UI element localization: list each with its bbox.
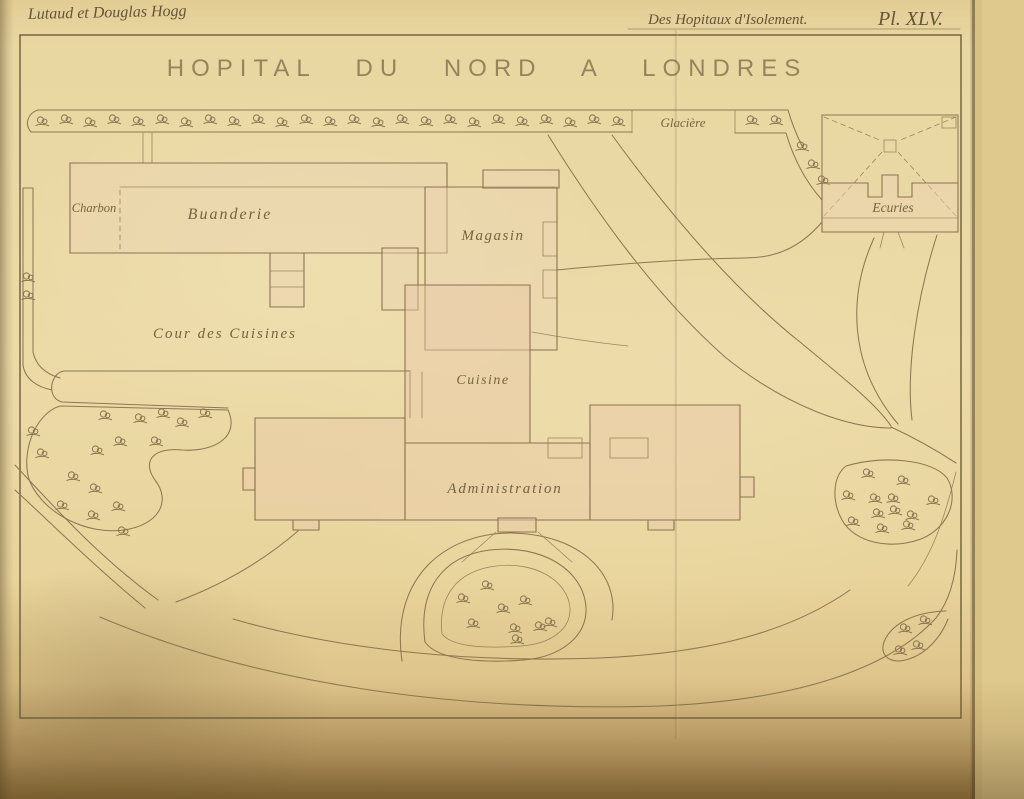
- building-ecuries: [822, 115, 958, 248]
- site-plan-drawing: Lutaud et Douglas Hogg Des Hopitaux d'Is…: [0, 0, 1024, 799]
- plate-authors: Lutaud et Douglas Hogg: [27, 3, 187, 23]
- label-buanderie: Buanderie: [188, 206, 273, 223]
- label-cour-des-cuisines: Cour des Cuisines: [153, 326, 297, 342]
- plate-series-title: Des Hopitaux d'Isolement.: [647, 12, 807, 28]
- label-magasin: Magasin: [461, 228, 525, 244]
- scanned-plate: Lutaud et Douglas Hogg Des Hopitaux d'Is…: [0, 0, 1024, 799]
- garden-trees-center: [457, 581, 558, 644]
- label-administration: Administration: [446, 481, 562, 497]
- left-strip: [22, 188, 61, 390]
- label-glaciere: Glacière: [661, 115, 706, 130]
- building-cuisine: [405, 285, 530, 443]
- label-cuisine: Cuisine: [456, 373, 509, 388]
- plate-number: Pl. XLV.: [877, 8, 943, 30]
- plan-title: HOPITAL DU NORD A LONDRES: [167, 55, 807, 82]
- label-ecuries: Ecuries: [871, 200, 913, 215]
- garden-trees-left: [27, 409, 213, 536]
- building-buanderie: [70, 163, 447, 310]
- label-charbon: Charbon: [72, 201, 116, 215]
- garden-trees-right: [842, 469, 941, 655]
